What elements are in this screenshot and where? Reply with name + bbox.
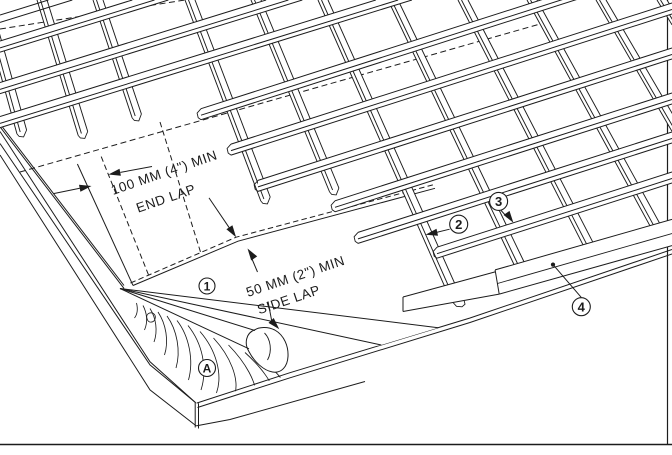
svg-text:A: A xyxy=(203,361,212,375)
svg-text:2: 2 xyxy=(455,217,462,232)
svg-text:4: 4 xyxy=(578,299,586,314)
svg-text:3: 3 xyxy=(495,194,502,209)
svg-text:1: 1 xyxy=(204,279,211,293)
